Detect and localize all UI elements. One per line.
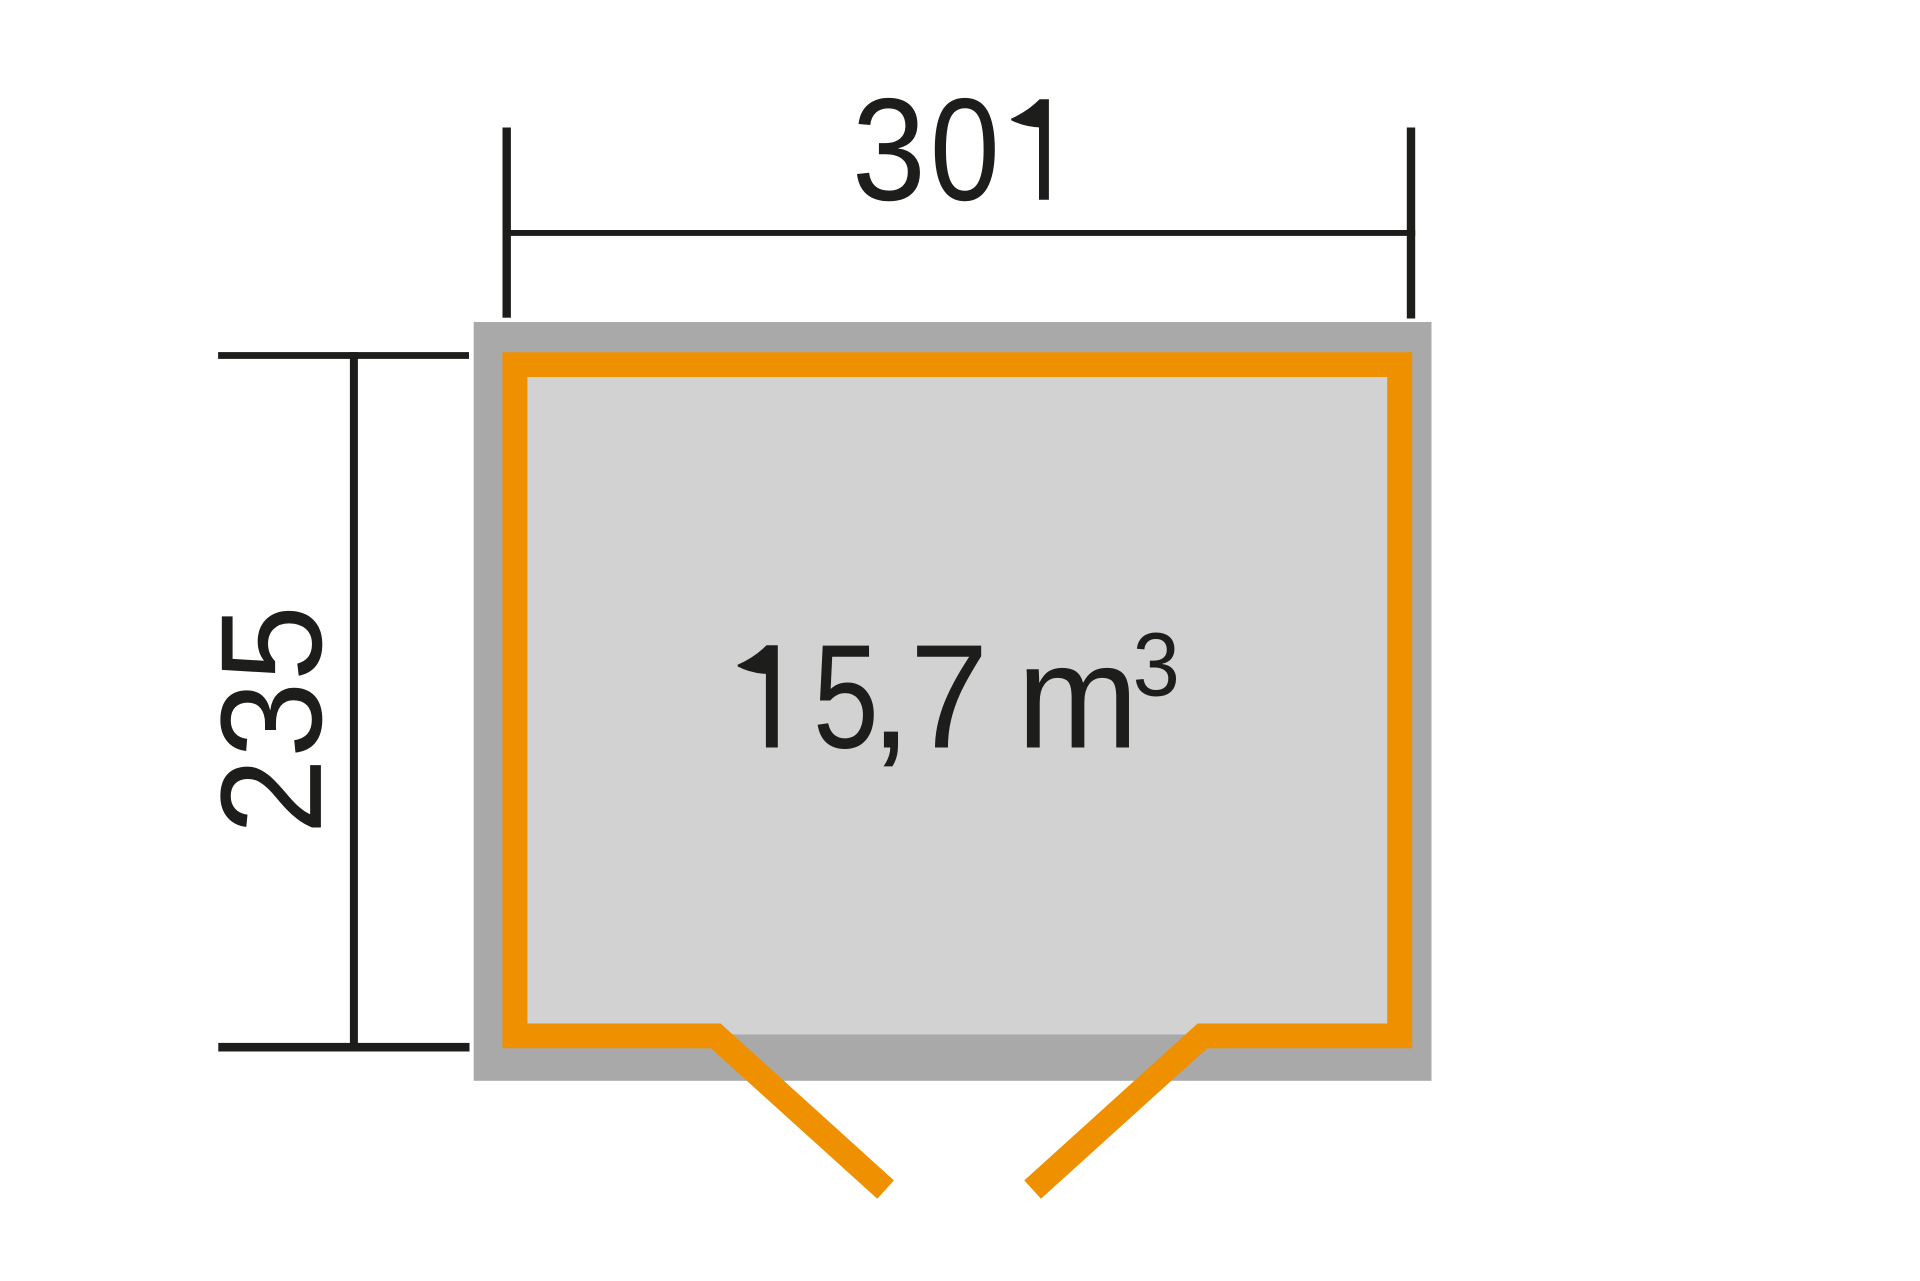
svg-text:7: 7 xyxy=(910,613,988,779)
svg-text:235: 235 xyxy=(191,605,352,835)
svg-text:3: 3 xyxy=(1133,614,1180,715)
svg-text:,: , xyxy=(870,615,911,780)
svg-text:5: 5 xyxy=(813,615,879,780)
svg-text:3: 3 xyxy=(852,68,926,231)
svg-text:m: m xyxy=(1017,615,1139,780)
svg-text:0: 0 xyxy=(930,68,1000,231)
